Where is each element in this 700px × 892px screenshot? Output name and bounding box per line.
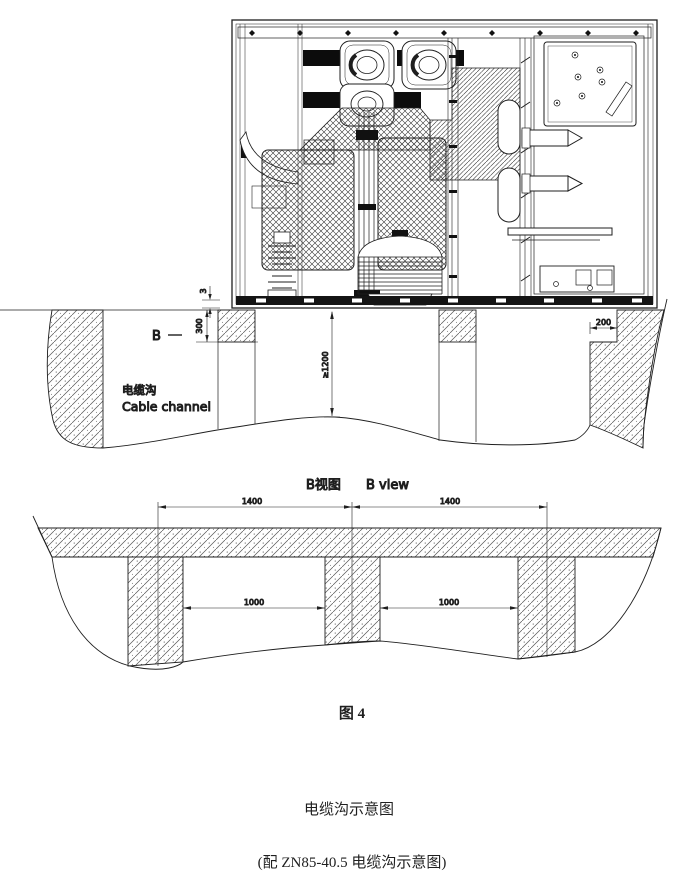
foundation-pad-middle (439, 310, 476, 342)
channel-top-band (38, 528, 661, 557)
busbar-bushing-1 (340, 41, 394, 89)
channel-wall-middle (325, 557, 380, 645)
wall-bushing-upper (498, 100, 582, 154)
earth-left (47, 310, 103, 448)
figure-title: 电缆沟示意图 (304, 800, 394, 818)
ground-section: 3 300 ≥1200 200 B 电缆沟 Cable channel (0, 286, 667, 448)
dim-opening-right-text: 1000 (439, 598, 459, 607)
captions: 图 4 电缆沟示意图 (配 ZN85-40.5 电缆沟示意图) (258, 705, 447, 871)
top-rail-bolts (249, 30, 639, 36)
cabinet-base (236, 296, 653, 305)
figure-subtitle: (配 ZN85-40.5 电缆沟示意图) (258, 853, 447, 871)
channel-bottom-line (103, 417, 590, 448)
corner-bracket (606, 82, 632, 116)
dim-channel-depth-text: ≥1200 (321, 351, 330, 378)
dim-span-right-text: 1400 (440, 497, 460, 506)
dim-span-left-text: 1400 (242, 497, 262, 506)
wall-bushing-lower (498, 168, 582, 222)
channel-label-en: Cable channel (122, 399, 211, 414)
switchgear-section-view (232, 20, 657, 308)
b-view: B视图 B view 1400 1400 1000 (33, 478, 661, 669)
section-b-label: B (152, 329, 161, 344)
terminal-box (540, 266, 614, 292)
b-view-title-zh: B视图 (306, 478, 341, 493)
technical-drawing: 3 300 ≥1200 200 B 电缆沟 Cable channel B视图 (0, 0, 700, 892)
earth-right (590, 310, 664, 448)
dim-gap-text: 3 (199, 288, 208, 293)
dim-foundation-depth-text: 300 (195, 318, 204, 333)
foundation-pad-left (218, 310, 255, 342)
dim-notch-text: 200 (596, 318, 611, 327)
channel-wall-left (128, 557, 183, 666)
figure-label: 图 4 (339, 705, 366, 722)
channel-label-zh: 电缆沟 (122, 383, 157, 397)
drawing-page: 3 300 ≥1200 200 B 电缆沟 Cable channel B视图 (0, 0, 700, 892)
b-view-title-en: B view (366, 478, 409, 493)
channel-wall-right (518, 557, 575, 659)
dim-opening-left-text: 1000 (244, 598, 264, 607)
right-panel-door (544, 42, 636, 126)
shelf (508, 228, 612, 235)
